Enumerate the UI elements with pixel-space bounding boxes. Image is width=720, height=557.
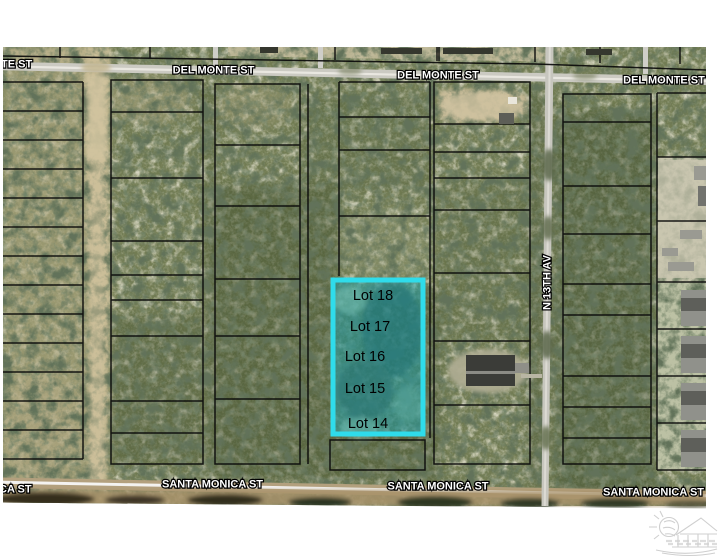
svg-text:Lot 18: Lot 18 — [353, 288, 393, 304]
svg-text:SANTA MONICA ST: SANTA MONICA ST — [603, 487, 704, 499]
svg-text:DEL MONTE ST: DEL MONTE ST — [173, 65, 255, 77]
svg-text:Lot 17: Lot 17 — [350, 319, 390, 335]
svg-text:SANTA MONICA ST: SANTA MONICA ST — [387, 481, 488, 493]
svg-text:DEL MONTE ST: DEL MONTE ST — [397, 70, 479, 82]
svg-text:Lot 14: Lot 14 — [348, 416, 388, 432]
svg-text:TE ST: TE ST — [1, 59, 32, 71]
svg-text:SANTA MONICA ST: SANTA MONICA ST — [162, 479, 263, 491]
svg-text:Lot 15: Lot 15 — [345, 381, 385, 397]
svg-text:N 13TH AV: N 13TH AV — [542, 254, 554, 310]
svg-text:Lot 16: Lot 16 — [345, 349, 385, 365]
svg-text:DEL MONTE ST: DEL MONTE ST — [623, 75, 705, 87]
svg-text:CA ST: CA ST — [0, 484, 32, 496]
